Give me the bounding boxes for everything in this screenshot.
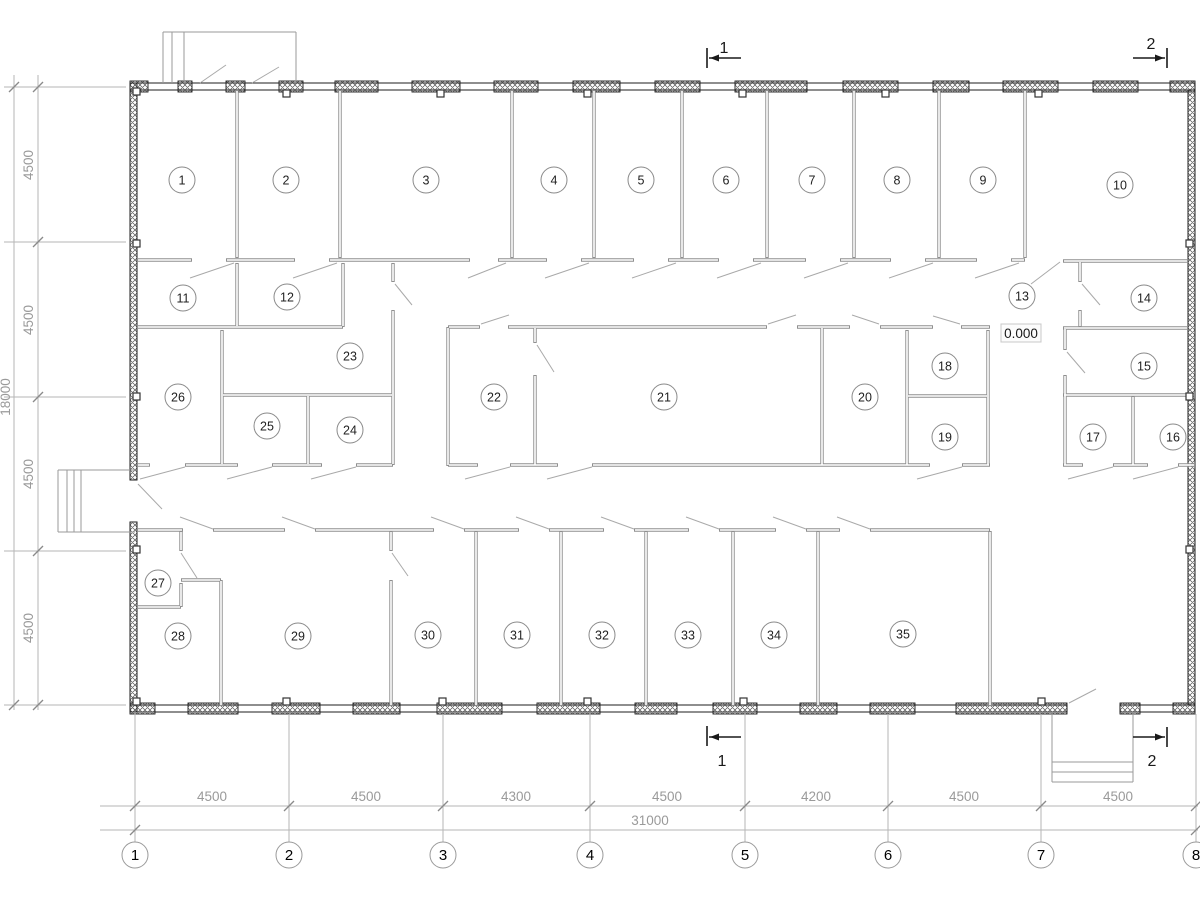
room-number: 22 [487, 391, 501, 405]
room-number: 13 [1015, 290, 1029, 304]
door-swing [1031, 262, 1060, 284]
room-number: 30 [421, 629, 435, 643]
axis-number: 7 [1037, 847, 1045, 864]
room-number: 10 [1113, 179, 1127, 193]
room-number: 28 [171, 630, 185, 644]
section-arrow-icon [1155, 55, 1164, 62]
window [843, 81, 898, 92]
section-label: 1 [720, 40, 729, 57]
room-number: 33 [681, 629, 695, 643]
floor-plan: 4500450043004500420045004500310004500450… [0, 0, 1200, 900]
room-number: 14 [1137, 292, 1151, 306]
window [870, 703, 915, 714]
window [1120, 703, 1140, 714]
door-swing [282, 517, 315, 529]
door-swing [392, 553, 408, 576]
room-number: 1 [179, 174, 186, 188]
room-number: 4 [551, 174, 558, 188]
column-tab [133, 240, 140, 247]
axis-number: 1 [131, 847, 139, 864]
door-swing [293, 263, 337, 278]
door-swing [852, 315, 879, 324]
door-swing [465, 467, 510, 479]
dimension-label: 4500 [351, 789, 381, 804]
dimension-label: 4500 [21, 459, 36, 489]
door-swing [431, 517, 464, 529]
dimension-label: 4500 [652, 789, 682, 804]
axis-number: 3 [439, 847, 447, 864]
door-swing [140, 467, 185, 479]
room-number: 25 [260, 420, 274, 434]
room-number: 27 [151, 577, 165, 591]
door-swing [717, 263, 761, 278]
section-arrow-icon [710, 734, 719, 741]
door-swing [773, 517, 806, 529]
door-swing [545, 263, 589, 278]
column-tab [584, 698, 591, 705]
axis-number: 2 [285, 847, 293, 864]
window [1003, 81, 1058, 92]
door-swing [632, 263, 676, 278]
window [188, 703, 238, 714]
door-swing [837, 517, 870, 529]
dimension-label: 4500 [197, 789, 227, 804]
exterior-wall [130, 83, 137, 480]
column-tab [133, 88, 140, 95]
window [573, 81, 620, 92]
column-tab [1038, 698, 1045, 705]
window [1093, 81, 1138, 92]
column-tab [1186, 393, 1193, 400]
column-tab [283, 698, 290, 705]
dimension-label-total: 18000 [0, 378, 13, 416]
door-swing [181, 553, 197, 578]
door-swing [395, 284, 412, 305]
window [178, 81, 192, 92]
column-tab [740, 698, 747, 705]
elevation-label: 0.000 [1004, 326, 1038, 341]
column-tab [437, 90, 444, 97]
door-swing [537, 345, 554, 372]
window [655, 81, 700, 92]
window [272, 703, 320, 714]
door-swing [200, 65, 226, 83]
room-number: 6 [723, 174, 730, 188]
door-swing [1082, 284, 1100, 305]
window [635, 703, 677, 714]
door-swing [917, 467, 962, 479]
window [412, 81, 460, 92]
dimension-label: 4500 [21, 305, 36, 335]
room-number: 12 [280, 291, 294, 305]
dimension-label: 4300 [501, 789, 531, 804]
room-number: 9 [980, 174, 987, 188]
column-tab [1035, 90, 1042, 97]
door-swing [933, 316, 960, 324]
room-number: 23 [343, 350, 357, 364]
room-number: 17 [1086, 431, 1100, 445]
room-number: 24 [343, 424, 357, 438]
column-tab [584, 90, 591, 97]
column-tab [133, 393, 140, 400]
room-number: 18 [938, 360, 952, 374]
room-number: 8 [894, 174, 901, 188]
axis-number: 8 [1192, 847, 1200, 864]
section-arrow-icon [1155, 734, 1164, 741]
room-number: 21 [657, 391, 671, 405]
room-number: 31 [510, 629, 524, 643]
section-arrow-icon [710, 55, 719, 62]
column-tab [439, 698, 446, 705]
column-tab [133, 546, 140, 553]
axis-number: 4 [586, 847, 594, 864]
room-number: 34 [767, 629, 781, 643]
door-swing [1069, 689, 1096, 703]
room-number: 16 [1166, 431, 1180, 445]
dimension-label: 4500 [949, 789, 979, 804]
column-tab [882, 90, 889, 97]
door-swing [804, 263, 848, 278]
room-number: 26 [171, 391, 185, 405]
door-swing [547, 467, 592, 479]
window [353, 703, 400, 714]
column-tab [1186, 240, 1193, 247]
axis-number: 6 [884, 847, 892, 864]
door-swing [468, 263, 506, 278]
room-number: 5 [638, 174, 645, 188]
dimension-label: 4500 [1103, 789, 1133, 804]
column-tab [283, 90, 290, 97]
door-swing [1133, 467, 1178, 479]
door-swing [516, 517, 549, 529]
door-swing [227, 467, 272, 479]
section-label: 2 [1147, 36, 1156, 53]
axis-number: 5 [741, 847, 749, 864]
column-tab [739, 90, 746, 97]
door-swing [1067, 352, 1085, 373]
door-swing [768, 315, 796, 324]
column-tab [1186, 546, 1193, 553]
room-number: 19 [938, 431, 952, 445]
door-swing [889, 263, 933, 278]
window [437, 703, 502, 714]
section-label: 1 [718, 753, 727, 770]
door-swing [1068, 467, 1113, 479]
room-number: 2 [283, 174, 290, 188]
dimension-label: 4500 [21, 613, 36, 643]
window [494, 81, 538, 92]
dimension-label: 4200 [801, 789, 831, 804]
room-number: 3 [423, 174, 430, 188]
room-number: 7 [809, 174, 816, 188]
door-swing [975, 263, 1019, 278]
room-number: 35 [896, 628, 910, 642]
door-swing [311, 467, 356, 479]
window [956, 703, 1067, 714]
room-number: 20 [858, 391, 872, 405]
room-number: 32 [595, 629, 609, 643]
room-number: 29 [291, 630, 305, 644]
door-swing [601, 517, 634, 529]
dimension-label: 4500 [21, 150, 36, 180]
door-swing [686, 517, 719, 529]
door-swing [138, 484, 162, 509]
window [713, 703, 757, 714]
dimension-label-total: 31000 [631, 813, 669, 828]
column-tab [133, 698, 140, 705]
door-swing [252, 67, 279, 83]
door-swing [481, 315, 509, 324]
room-number: 15 [1137, 360, 1151, 374]
section-label: 2 [1148, 753, 1157, 770]
floor-plan-canvas: 4500450043004500420045004500310004500450… [0, 0, 1200, 900]
door-swing [180, 517, 213, 529]
room-number: 11 [177, 292, 190, 306]
door-swing [190, 263, 234, 278]
